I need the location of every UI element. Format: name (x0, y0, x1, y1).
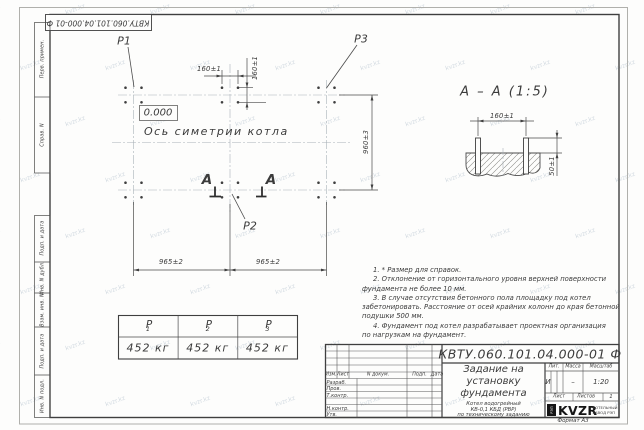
note-line: по нагрузкам на фундамент. (362, 331, 618, 340)
load-table-header-p3: P3 (265, 319, 269, 333)
tb-sheets-label: Листов (577, 395, 595, 400)
load-point-p3-label: P3 (354, 33, 368, 46)
elevation-mark: 0.000 (144, 107, 173, 118)
note-line: подушки 500 мм. (362, 312, 618, 321)
tb-lit-value: И (545, 378, 550, 386)
section-bolt (524, 138, 529, 174)
margin-field-podp-data-1: Подп. и дата (40, 220, 45, 255)
section-view-title: А – А (1:5) (460, 85, 550, 100)
tb-mass-header: Масса (565, 365, 580, 370)
tb-sheet-label: Лист (553, 395, 565, 400)
tb-row-nkontr: Н.контр. (327, 406, 349, 412)
margin-field-vzam-inv: Взам. инв. N (40, 293, 45, 327)
tb-header-izm: Изм. (325, 373, 336, 378)
tb-row-tkontr: Т.контр. (327, 393, 349, 399)
sheet-frame (20, 8, 628, 425)
drawing-sheet: kvzr.kzkvzr.kzkvzr.kzkvzr.kzkvzr.kzkvzr.… (0, 0, 644, 430)
section-dim-50: 50±1 (548, 156, 556, 175)
tb-scale-header: Масштаб (590, 365, 613, 370)
title-block-doc-number: КВТУ.060.101.04.000-01 Ф (438, 346, 621, 361)
load-symbol: P (146, 319, 152, 331)
drawing-title-line: фундамента (442, 388, 545, 400)
kvzr-logo-sub2: ЗАВОД РЭП (593, 410, 616, 415)
section-concrete-pad (466, 138, 540, 176)
tb-row-utv: Утв. (327, 412, 338, 418)
section-dim-160: 160±1 (490, 112, 514, 120)
kvzr-emblem-text: РЭП (550, 406, 554, 414)
section-letter-right: А (266, 172, 276, 188)
load-symbol: P (265, 319, 271, 331)
drawing-title-line: Задание на (442, 364, 545, 376)
dim-160-top: 160±1 (197, 65, 221, 73)
corner-stamp-number: КВТУ.060.101.04.000-01 Ф (47, 18, 150, 27)
boiler-symmetry-axis-label: Ось симетрии котла (144, 125, 289, 138)
note-line: 4. Фундамент под котел разрабатывает про… (362, 322, 618, 331)
margin-field-sprav-n: Справ. N (40, 123, 45, 147)
note-line: забетонировать. Расстояние от осей крайн… (362, 303, 618, 312)
dim-960: 960±3 (362, 130, 370, 154)
tb-row-prov: Пров. (327, 386, 342, 392)
load-table-header-p2: P2 (206, 319, 210, 333)
margin-field-perv-primen: Перв. примен. (40, 40, 45, 79)
tb-header-list: Лист (337, 373, 349, 378)
centerlines (112, 64, 352, 213)
drawing-subtitle: Котел водогрейный КВ-0,1 КБД (РВР) по те… (442, 402, 545, 419)
note-line: фундамента не более 10 мм. (362, 285, 618, 294)
margin-field-inv-podl: Инв. N подл. (40, 379, 45, 413)
load-value-p2: 452 кг (186, 342, 229, 355)
tb-row-razrab: Разраб. (327, 380, 347, 386)
tb-lit-header: Лит. (548, 365, 559, 370)
format-label: Формат А3 (557, 418, 588, 424)
kvzr-logo-sub1: КОТЕЛЬНЫЙ (593, 405, 618, 410)
load-point-p2-label: P2 (243, 220, 257, 233)
drawing-subtitle-line: по техническому заданию (442, 413, 545, 419)
dim-965-left: 965±2 (159, 258, 183, 266)
technical-notes: 1. * Размер для справок. 2. Отклонение о… (362, 266, 618, 340)
load-point-p1-label: P1 (117, 35, 131, 48)
tb-sheets-value: 1 (609, 394, 613, 400)
section-bolt (476, 138, 481, 174)
tb-scale-value: 1:20 (593, 378, 609, 386)
load-value-p1: 452 кг (127, 342, 170, 355)
tb-header-podp: Подп. (412, 373, 427, 378)
tb-header-ndokum: N докум. (367, 373, 389, 378)
tb-mass-value: – (571, 378, 575, 386)
kvzr-emblem: РЭП (547, 404, 556, 417)
note-line: 2. Отклонение от горизонтального уровня … (362, 275, 618, 284)
section-letter-left: А (202, 172, 212, 188)
drawing-title: Задание на установку фундамента (442, 364, 545, 400)
drawing-title-line: установку (442, 376, 545, 388)
load-value-p3: 452 кг (246, 342, 289, 355)
margin-field-inv-dubl: Инв. N дубл. (40, 261, 45, 295)
kvzr-logo-text: KVZR (558, 403, 597, 418)
dim-160-side: 160±1 (251, 56, 259, 80)
tb-header-data: Дата (431, 373, 443, 378)
load-table-header-p1: P1 (146, 319, 150, 333)
load-symbol: P (206, 319, 212, 331)
note-line: 1. * Размер для справок. (362, 266, 618, 275)
margin-field-podp-data-2: Подп. и дата (40, 333, 45, 368)
dim-965-right: 965±2 (256, 258, 280, 266)
note-line: 3. В случае отсутствия бетонного пола пл… (362, 294, 618, 303)
section-cut-marks (210, 187, 267, 197)
drawing-linework (0, 0, 644, 430)
